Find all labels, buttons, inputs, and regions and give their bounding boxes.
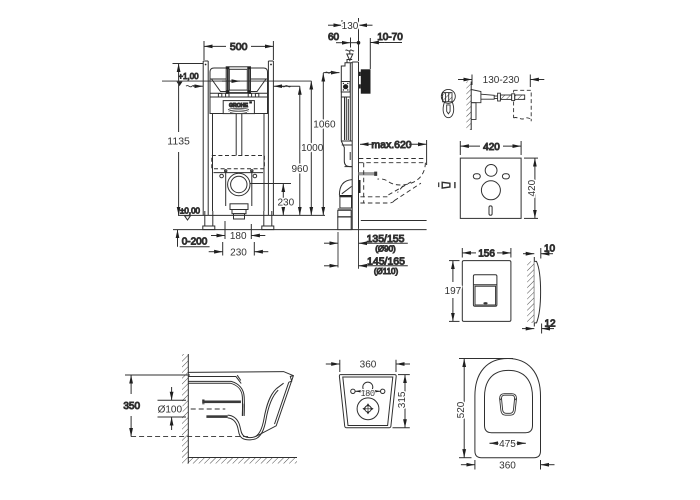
svg-text:(Ø90): (Ø90) — [375, 244, 396, 253]
svg-text:60: 60 — [328, 32, 340, 43]
svg-text:1000: 1000 — [301, 143, 324, 154]
svg-text:130-230: 130-230 — [483, 75, 520, 86]
svg-text:(Ø110): (Ø110) — [374, 267, 399, 276]
svg-text:Ø100: Ø100 — [158, 405, 183, 416]
svg-text:500: 500 — [230, 41, 248, 53]
svg-text:350: 350 — [123, 401, 140, 412]
svg-text:360: 360 — [499, 460, 516, 471]
svg-text:10: 10 — [544, 244, 556, 255]
svg-text:420: 420 — [527, 179, 538, 196]
svg-text:1135: 1135 — [167, 136, 190, 148]
svg-text:0-200: 0-200 — [182, 237, 208, 248]
svg-text:180: 180 — [230, 231, 247, 242]
svg-text:230: 230 — [277, 198, 294, 209]
svg-text:130: 130 — [342, 21, 359, 32]
svg-text:315: 315 — [397, 391, 408, 408]
svg-text:420: 420 — [483, 142, 500, 153]
svg-text:10-70: 10-70 — [377, 32, 403, 43]
svg-text:max.620: max.620 — [371, 139, 411, 151]
svg-text:230: 230 — [230, 247, 247, 258]
svg-text:475: 475 — [499, 439, 516, 450]
svg-text:156: 156 — [478, 249, 495, 260]
svg-text:520: 520 — [456, 401, 467, 418]
svg-text:360: 360 — [360, 360, 377, 371]
svg-text:+1,00: +1,00 — [178, 72, 199, 81]
svg-text:180: 180 — [361, 388, 375, 398]
svg-text:±0,00: ±0,00 — [180, 207, 201, 216]
svg-text:960: 960 — [291, 164, 308, 175]
svg-text:12: 12 — [544, 318, 556, 329]
svg-text:1060: 1060 — [313, 120, 336, 131]
svg-text:197: 197 — [445, 286, 462, 297]
